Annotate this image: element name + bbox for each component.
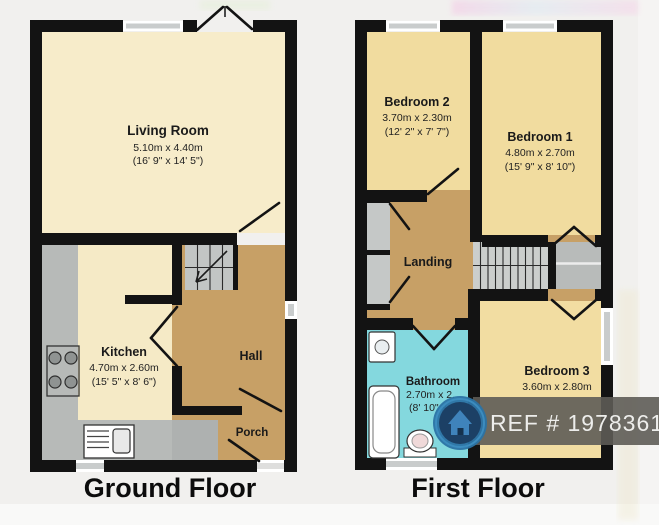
- bedroom1-label: Bedroom 1: [507, 130, 572, 144]
- kitchen-window: [76, 460, 104, 472]
- hall-window: [285, 301, 297, 319]
- bedroom2-imperial: (12' 2" x 7' 7"): [385, 126, 450, 138]
- living-room-imperial: (16' 9" x 14' 5"): [133, 155, 203, 167]
- kitchen-metric: 4.70m x 2.60m: [89, 362, 159, 374]
- house-logo-icon: [433, 396, 487, 450]
- first-floor-title: First Floor: [411, 473, 545, 503]
- cooker-sink-icon: [84, 425, 134, 458]
- ref-number: REF # 1978361: [490, 410, 659, 436]
- bedroom2-area: [367, 32, 470, 190]
- ground-staircase: [185, 245, 238, 290]
- bedroom1-imperial: (15' 9" x 8' 10"): [505, 161, 575, 173]
- landing-label: Landing: [404, 255, 453, 269]
- pink-artifact: [452, 0, 638, 15]
- bedroom1-metric: 4.80m x 2.70m: [505, 147, 575, 159]
- bedroom3-label: Bedroom 3: [524, 364, 589, 378]
- kitchen-imperial: (15' 5" x 8' 6"): [92, 376, 157, 388]
- bottom-margin: [0, 504, 659, 525]
- porch-store-area: [172, 420, 218, 460]
- watermark: REF # 1978361: [433, 396, 659, 450]
- bedroom3-metric: 3.60m x 2.80m: [522, 381, 592, 393]
- bathroom-window: [386, 458, 437, 470]
- ground-floor-title: Ground Floor: [84, 473, 257, 503]
- stair-half-landing: [556, 242, 601, 289]
- bathroom-sink-icon: [369, 332, 395, 362]
- bedroom3-side-window: [601, 308, 613, 365]
- hall-label: Hall: [240, 349, 263, 363]
- porch-entry-gap: [257, 460, 284, 472]
- living-room-label: Living Room: [127, 123, 209, 138]
- bathtub-icon: [369, 386, 399, 458]
- floorplan-image: Living Room 5.10m x 4.40m (16' 9" x 14' …: [0, 0, 659, 525]
- bathroom-label: Bathroom: [406, 376, 460, 388]
- green-artifact: [200, 0, 270, 10]
- living-room-window: [123, 21, 183, 31]
- bedroom2-label: Bedroom 2: [384, 95, 449, 109]
- bedroom2-window: [386, 21, 440, 31]
- porch-label: Porch: [236, 427, 269, 439]
- living-room-metric: 5.10m x 4.40m: [133, 142, 203, 154]
- bedroom1-window: [503, 21, 557, 31]
- bedroom2-metric: 3.70m x 2.30m: [382, 112, 452, 124]
- first-staircase: [473, 242, 601, 289]
- kitchen-label: Kitchen: [101, 345, 147, 359]
- right-margin: [638, 0, 659, 525]
- ground-floor-plan: Living Room 5.10m x 4.40m (16' 9" x 14' …: [30, 6, 297, 503]
